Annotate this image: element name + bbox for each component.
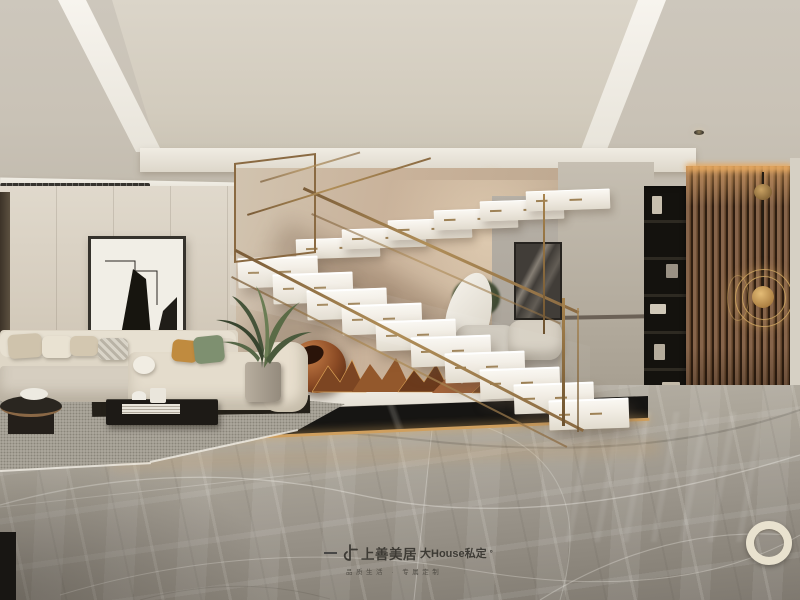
- watermark-row: 上善美居 大House私定 °: [324, 543, 514, 563]
- brand-watermark: 上善美居 大House私定 ° 品质生活 · 专属定制: [324, 543, 514, 576]
- table-decor: [132, 391, 146, 400]
- watermark-tagline: 品质生活 · 专属定制: [346, 566, 514, 576]
- brass-post: [543, 194, 545, 334]
- brass-post: [562, 298, 565, 426]
- watermark-dash: [324, 552, 337, 554]
- step-gold-inlay: [536, 198, 600, 202]
- pillow: [70, 336, 98, 356]
- stair-step: [526, 189, 611, 212]
- pillow: [42, 336, 72, 358]
- wall-lamp-top-disc: [754, 184, 772, 200]
- display-shelf: [644, 186, 690, 404]
- pillow-checkered: [98, 338, 128, 360]
- shelf-object: [650, 304, 666, 314]
- corner-object: [0, 532, 16, 600]
- decor-bowl: [20, 388, 48, 400]
- potted-plant: [204, 258, 322, 376]
- watermark-brand: 上善美居: [361, 543, 417, 563]
- watermark-product: 大House私定: [420, 545, 487, 561]
- shelf-object: [654, 344, 665, 360]
- shelf-object: [666, 264, 678, 278]
- floor-reflection: [560, 412, 760, 542]
- stair-step: [548, 398, 629, 431]
- pillow-round: [133, 356, 155, 374]
- decorative-floor-ring: [746, 521, 792, 565]
- brand-logo-icon: [342, 544, 358, 562]
- slat-wall-cove-glow: [686, 164, 792, 171]
- wall-lamp-ring: [727, 275, 749, 321]
- watermark-degree: °: [490, 549, 493, 558]
- brass-post: [577, 308, 579, 432]
- step-gold-inlay: [558, 412, 619, 416]
- wall-lamp-core: [752, 286, 774, 308]
- pillow: [7, 333, 43, 359]
- table-decor: [150, 388, 166, 403]
- interior-photo: 上善美居 大House私定 ° 品质生活 · 专属定制: [0, 0, 800, 600]
- shelf-object: [652, 196, 662, 214]
- books-stack: [122, 404, 180, 414]
- hallway-artwork: [514, 242, 562, 320]
- right-wall-edge: [790, 158, 800, 420]
- downlight-icon: [694, 130, 704, 135]
